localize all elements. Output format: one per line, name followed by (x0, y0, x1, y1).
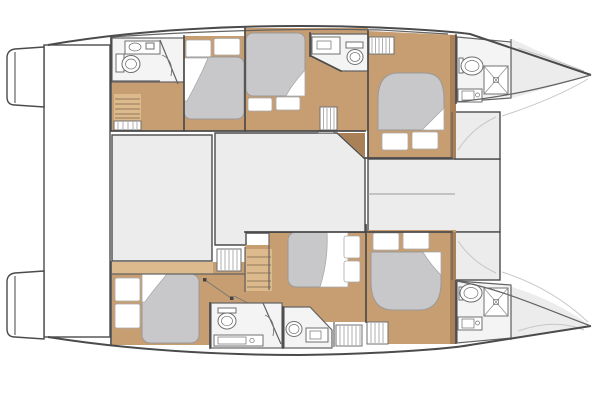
pillow (382, 133, 408, 150)
door-jamb (230, 297, 234, 301)
stbd-mid-toilet (286, 322, 302, 337)
stbd-forward-bulkhead-wood (450, 232, 456, 344)
catamaran-floor-plan (0, 0, 600, 400)
port-aft-bathroom (112, 38, 184, 84)
pillow (373, 233, 399, 250)
foredeck-starboard-arm (455, 232, 500, 280)
port-aft-berth (184, 39, 244, 120)
foredeck-main (368, 159, 500, 232)
port-aft-vanity (125, 41, 160, 54)
port-transom-steps (7, 47, 44, 107)
stbd-aft-toilet-tank (218, 308, 236, 313)
wardrobe-box (320, 107, 337, 130)
pillow (115, 278, 140, 301)
foredeck-port-arm (455, 112, 500, 159)
pillow (403, 232, 429, 249)
starboard-transom-steps (7, 271, 44, 339)
stbd-stairs-box (246, 249, 272, 291)
stbd-wardrobes (336, 322, 388, 346)
port-aft-faucet (146, 43, 154, 49)
stbd-aft-shelf (112, 262, 213, 274)
pillow (344, 261, 360, 282)
salon (215, 133, 365, 245)
port-aft-toilet (122, 56, 140, 73)
door-jamb (203, 278, 207, 282)
port-stairs-box (114, 94, 141, 121)
pillow (276, 97, 300, 110)
port-mid-vanity (312, 37, 340, 54)
pillow (115, 304, 140, 328)
stbd-forepeak-toilet (460, 284, 482, 302)
floor-plan-canvas (0, 0, 600, 400)
stbd-aft-toilet (218, 313, 236, 329)
stbd-forepeak-bathroom (457, 281, 511, 343)
wardrobe-box (369, 37, 394, 54)
cockpit (112, 135, 212, 261)
pillow (248, 98, 272, 111)
port-forward-wardrobe (369, 37, 394, 54)
port-forepeak-bathroom (457, 37, 511, 102)
pillow (412, 132, 438, 149)
port-stairs (114, 94, 141, 130)
port-mid-toilet (347, 50, 363, 65)
port-mid-toilet-tank (346, 42, 363, 48)
stbd-aft-bathroom (211, 303, 282, 348)
aft-deck-platform (44, 45, 110, 337)
port-forepeak-toilet (461, 57, 483, 75)
stbd-aft-vanity (214, 335, 263, 346)
pillow (344, 236, 360, 258)
stbd-mid-sink-counter (306, 328, 328, 342)
port-forward-bulkhead-wood (450, 35, 456, 158)
pillow (214, 39, 240, 56)
pillow (186, 40, 211, 57)
wardrobe-box (367, 322, 388, 344)
port-mid-wardrobe (320, 107, 337, 130)
